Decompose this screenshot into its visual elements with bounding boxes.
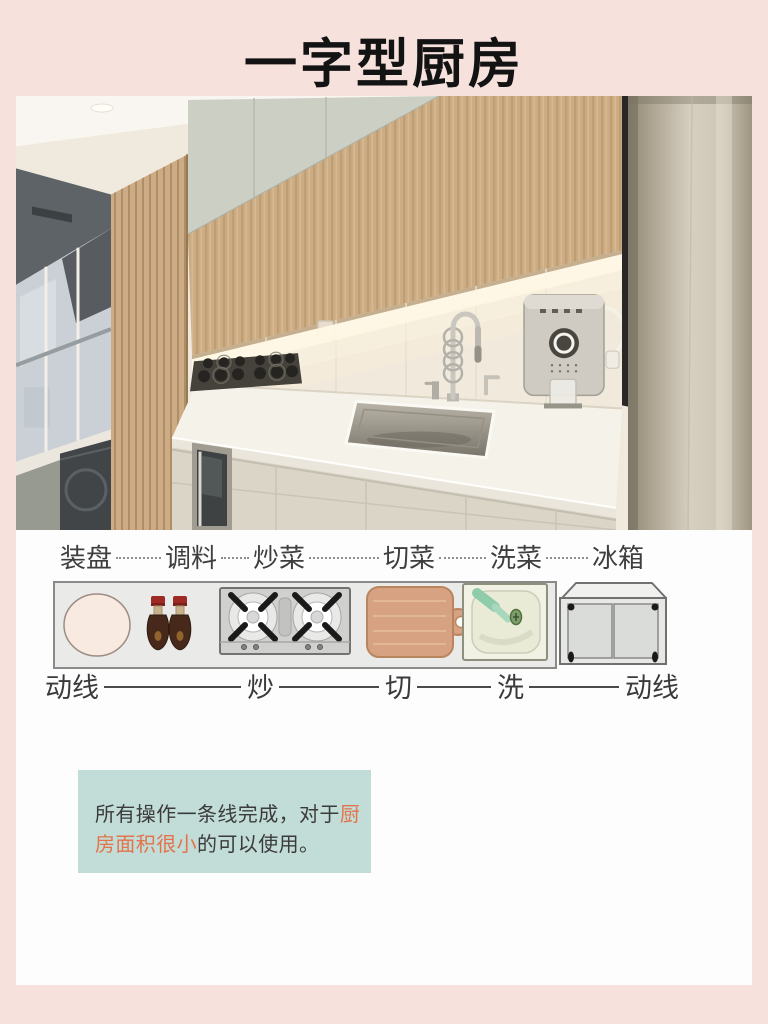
flow-label-wash: 洗 [497,672,524,704]
plate-icon [64,594,130,656]
flow-connector [104,686,241,688]
dotted-connector [116,557,161,559]
sink-icon [463,584,547,660]
page-title: 一字型厨房 [0,22,768,98]
flow-label-line-start: 动线 [45,672,99,704]
flow-connector [417,686,491,688]
kitchen-photo [16,96,752,530]
flow-label-cook: 炒 [247,672,274,704]
station-label-cutting: 切菜 [383,543,435,573]
dotted-connector [309,557,379,559]
fridge-icon [560,583,666,664]
infographic-page: 一字型厨房 [0,0,768,1024]
station-label-washing: 洗菜 [490,543,542,573]
station-label-fridge: 冰箱 [592,543,644,573]
note-text: 所有操作一条线完成，对于 [95,804,340,826]
station-label-plating: 装盘 [60,543,112,573]
flow-label-cut: 切 [385,672,412,704]
flow-connector [279,686,379,688]
warm-light-overlay [16,96,752,530]
note-text: 的可以使用。 [197,834,319,856]
dotted-connector [546,557,588,559]
dotted-connector [221,557,249,559]
stove-icon [220,588,350,654]
flow-connector [529,686,619,688]
dotted-connector [439,557,486,559]
note-box: 所有操作一条线完成，对于厨房面积很小的可以使用。 [78,770,371,873]
flow-label-line-end: 动线 [625,672,679,704]
station-label-seasoning: 调料 [165,543,217,573]
workflow-diagram: 装盘 调料 炒菜 切菜 洗菜 冰箱 [16,530,752,985]
counter-illustration [48,576,672,676]
station-label-cooking: 炒菜 [253,543,305,573]
